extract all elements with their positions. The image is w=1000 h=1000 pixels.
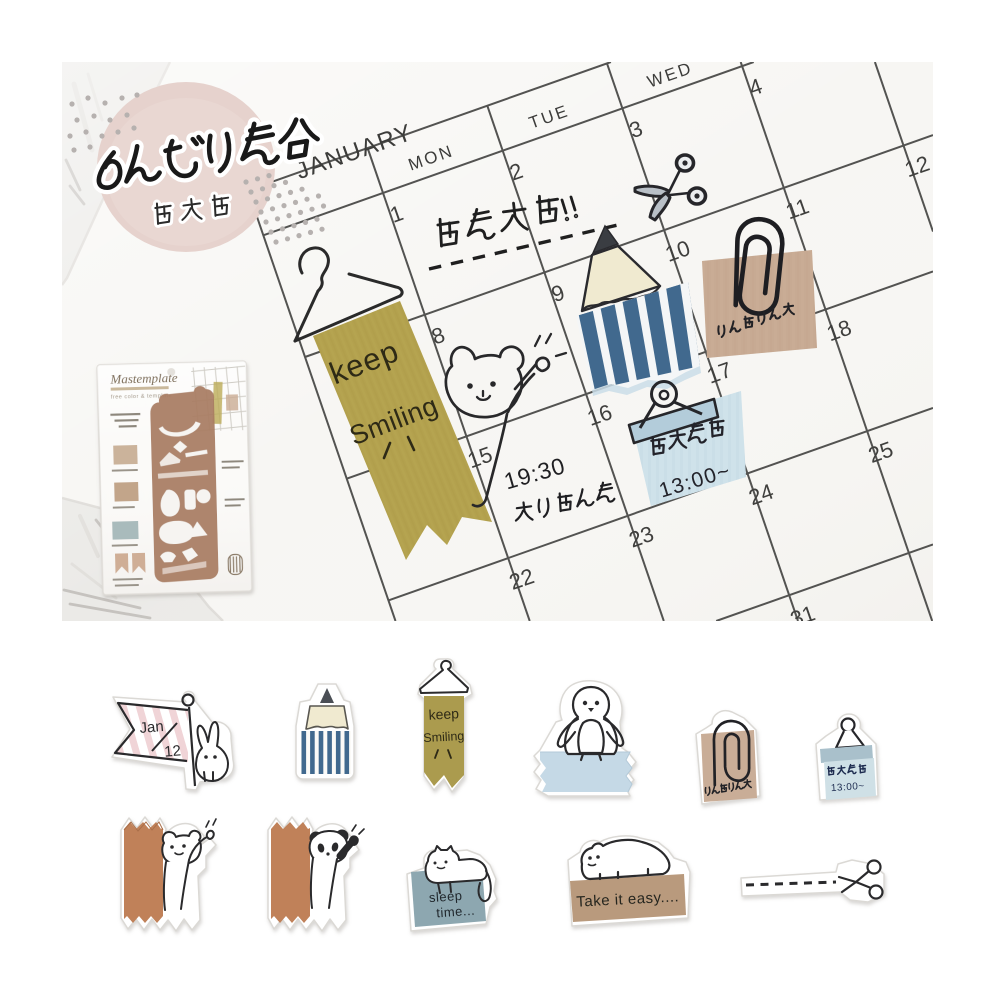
svg-text:time...: time... — [436, 903, 476, 921]
svg-text:Smiling: Smiling — [423, 729, 465, 745]
svg-text:Mastemplate: Mastemplate — [109, 370, 178, 387]
svg-text:keep: keep — [428, 705, 459, 723]
svg-text:12: 12 — [164, 742, 182, 760]
svg-text:sleep: sleep — [428, 888, 463, 905]
svg-text:Jan: Jan — [139, 718, 165, 737]
